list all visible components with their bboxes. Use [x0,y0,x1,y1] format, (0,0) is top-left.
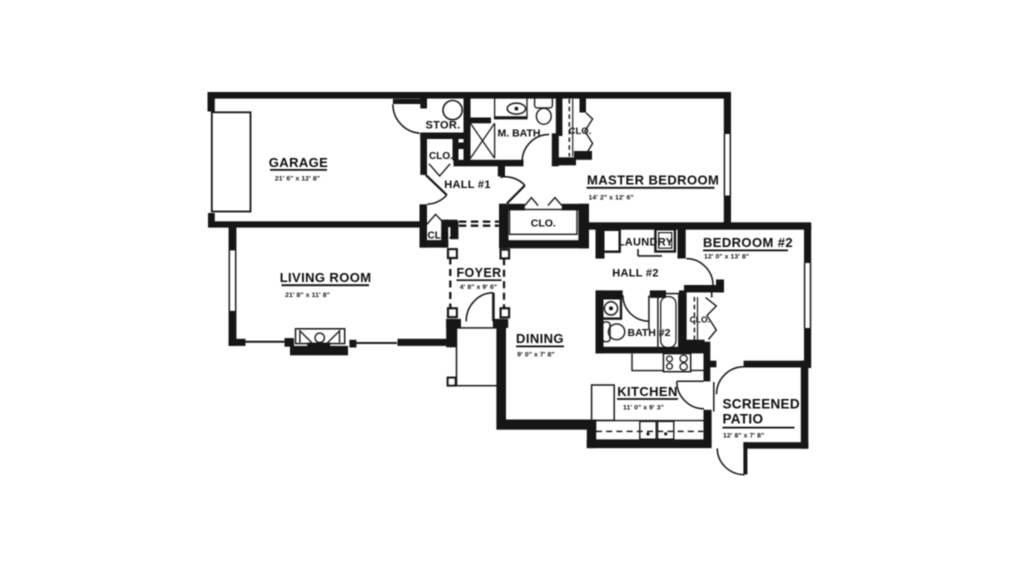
svg-text:9' 0" x 7' 8": 9' 0" x 7' 8" [517,352,554,359]
svg-text:STOR.: STOR. [426,120,461,132]
svg-text:GARAGE: GARAGE [269,155,328,170]
svg-text:FOYER: FOYER [456,266,501,280]
svg-text:HALL #2: HALL #2 [612,268,659,280]
svg-text:CLO.: CLO. [429,151,453,162]
svg-text:LAUNDRY: LAUNDRY [618,236,674,248]
svg-text:DINING: DINING [516,331,564,346]
svg-text:CLO.: CLO. [428,231,452,242]
svg-text:21' 6" x 12' 8": 21' 6" x 12' 8" [275,175,320,182]
svg-text:21' 8" x 11' 8": 21' 8" x 11' 8" [285,292,330,299]
svg-text:LIVING ROOM: LIVING ROOM [280,270,372,285]
svg-text:CLO.: CLO. [531,217,556,229]
svg-text:BEDROOM #2: BEDROOM #2 [703,235,793,250]
svg-text:HALL #1: HALL #1 [444,179,491,191]
svg-text:KITCHEN: KITCHEN [617,384,678,399]
svg-text:14' 2" x 12' 6": 14' 2" x 12' 6" [589,195,634,202]
svg-text:11' 0" x 9' 3": 11' 0" x 9' 3" [623,404,664,411]
svg-text:12' 8" x 7' 8": 12' 8" x 7' 8" [723,433,764,440]
svg-text:MASTER BEDROOM: MASTER BEDROOM [587,173,719,188]
svg-text:M. BATH: M. BATH [498,128,541,140]
svg-text:PATIO: PATIO [723,411,764,426]
svg-text:SCREENED: SCREENED [723,396,800,411]
svg-text:4' 8" x 9' 6": 4' 8" x 9' 6" [460,284,497,291]
svg-text:12' 0" x 13' 8": 12' 0" x 13' 8" [704,253,749,260]
